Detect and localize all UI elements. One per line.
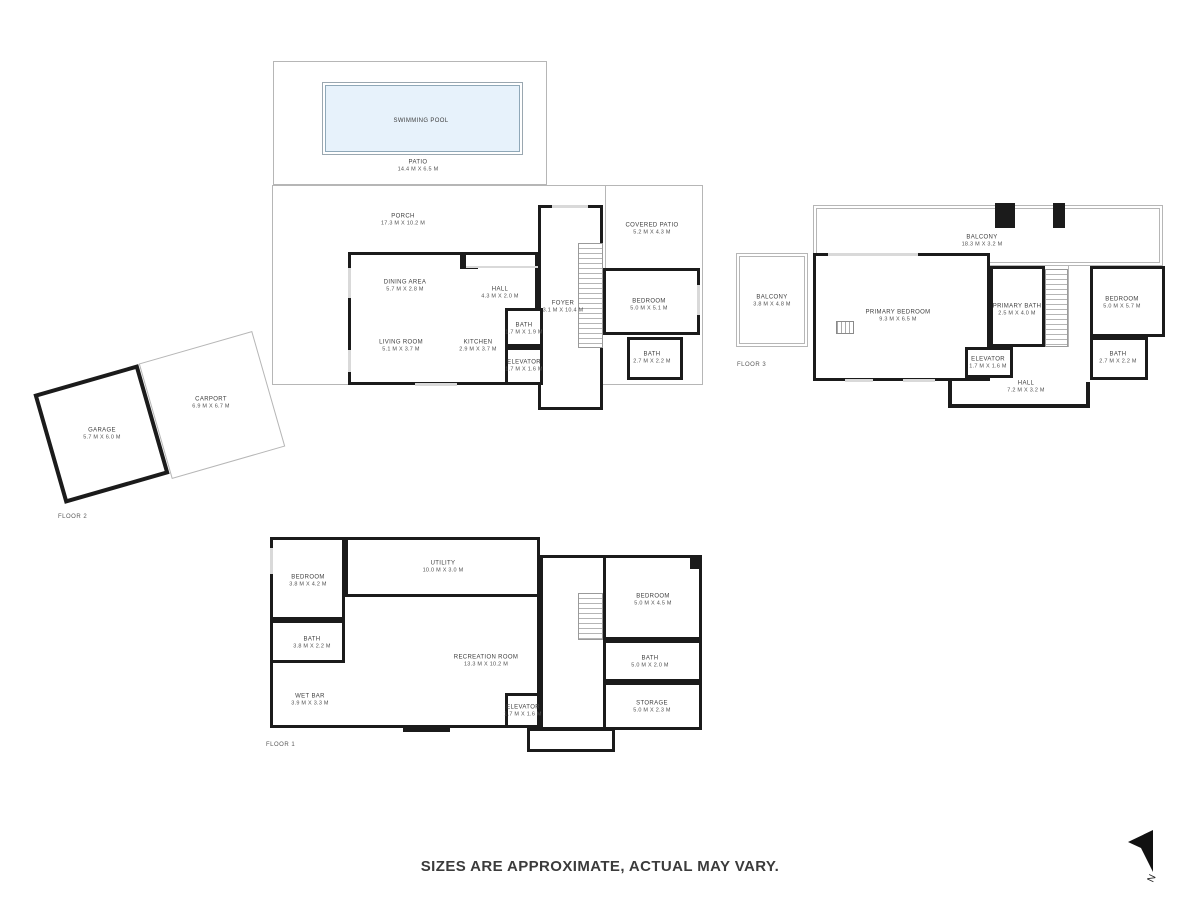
room-label-recreation-room: RECREATION ROOM13.3 M X 10.2 M [454, 655, 518, 668]
room-label-bath: BATH5.0 M X 2.0 M [631, 656, 669, 669]
room-label-storage: STORAGE5.0 M X 2.3 M [633, 701, 671, 714]
room-label-bedroom: BEDROOM5.0 M X 5.1 M [630, 299, 668, 312]
room-dimensions: 2.7 M X 2.2 M [1099, 359, 1137, 365]
room-name: ELEVATOR [969, 357, 1007, 363]
north-label: N [1146, 873, 1159, 884]
room-dimensions: 5.0 M X 2.0 M [631, 663, 669, 669]
wall-segment [1053, 203, 1065, 228]
room-label-swimming-pool: SWIMMING POOL [394, 118, 449, 124]
floorplan-canvas: FLOOR 2 FLOOR 3 FLOOR 1 SIZES ARE APPROX… [0, 0, 1200, 900]
room-dimensions: 5.7 M X 6.0 M [83, 435, 121, 441]
room-name: KITCHEN [459, 340, 497, 346]
room-label-bedroom: BEDROOM5.0 M X 4.5 M [634, 594, 672, 607]
room-name: BEDROOM [634, 594, 672, 600]
room-name: SWIMMING POOL [394, 118, 449, 124]
room-label-elevator: ELEVATOR1.7 M X 1.6 M [969, 357, 1007, 370]
room-name: PATIO [398, 160, 439, 166]
room-label-foyer: FOYER3.1 M X 10.4 M [543, 301, 584, 314]
room-name: STORAGE [633, 701, 671, 707]
room-name: FOYER [543, 301, 584, 307]
room-label-hall: HALL7.2 M X 3.2 M [1007, 381, 1045, 394]
room-dimensions: 5.0 M X 5.7 M [1103, 304, 1141, 310]
room-label-bedroom: BEDROOM5.0 M X 5.7 M [1103, 297, 1141, 310]
room-name: PORCH [381, 214, 425, 220]
room-name: ELEVATOR [505, 360, 543, 366]
stairs-f2 [578, 243, 603, 348]
room-dimensions: 1.7 M X 1.9 M [505, 330, 543, 336]
window-segment [828, 253, 918, 256]
room-label-covered-patio: COVERED PATIO5.2 M X 4.3 M [625, 223, 678, 236]
room-label-porch: PORCH17.3 M X 10.2 M [381, 214, 425, 227]
room-dimensions: 6.9 M X 6.7 M [192, 404, 230, 410]
room-dimensions: 17.3 M X 10.2 M [381, 221, 425, 227]
room-name: CARPORT [192, 397, 230, 403]
room-dimensions: 5.0 M X 5.1 M [630, 306, 668, 312]
stairs-f1 [578, 593, 603, 640]
room-name: WET BAR [291, 694, 329, 700]
room-name: HALL [1007, 381, 1045, 387]
room-dimensions: 2.7 M X 2.2 M [633, 359, 671, 365]
room-dimensions: 5.0 M X 4.5 M [634, 601, 672, 607]
window-segment [270, 548, 273, 574]
room-dimensions: 5.1 M X 3.7 M [379, 347, 423, 353]
room-name: UTILITY [423, 561, 464, 567]
room-label-bath: BATH1.7 M X 1.9 M [505, 323, 543, 336]
window-segment [415, 383, 457, 386]
room-label-patio: PATIO14.4 M X 6.5 M [398, 160, 439, 173]
room-dimensions: 3.1 M X 10.4 M [543, 308, 584, 314]
room-label-bath: BATH2.7 M X 2.2 M [1099, 352, 1137, 365]
room-name: GARAGE [83, 428, 121, 434]
room-dimensions: 3.9 M X 3.3 M [291, 701, 329, 707]
fireplace-icon [836, 321, 854, 334]
room-dimensions: 9.3 M X 6.5 M [865, 317, 930, 323]
room-dimensions: 2.9 M X 3.7 M [459, 347, 497, 353]
window-segment [466, 266, 538, 268]
room-name: BATH [505, 323, 543, 329]
room-name: BEDROOM [289, 575, 327, 581]
room-dimensions: 5.2 M X 4.3 M [625, 230, 678, 236]
room-label-bedroom: BEDROOM3.8 M X 4.2 M [289, 575, 327, 588]
room-dimensions: 2.5 M X 4.0 M [993, 311, 1042, 317]
floor-2-label: FLOOR 2 [58, 514, 87, 520]
room-label-elevator: ELEVATOR1.7 M X 1.6 M [505, 360, 543, 373]
porch-divider-line [605, 185, 606, 268]
stairs-f3 [1045, 269, 1068, 347]
window-segment [348, 350, 351, 372]
room-name: DINING AREA [384, 280, 427, 286]
room-label-wet-bar: WET BAR3.9 M X 3.3 M [291, 694, 329, 707]
landing-line [1068, 266, 1069, 347]
entry-bump [527, 728, 615, 752]
room-dimensions: 14.4 M X 6.5 M [398, 167, 439, 173]
window-segment [348, 268, 351, 298]
room-label-kitchen: KITCHEN2.9 M X 3.7 M [459, 340, 497, 353]
room-label-bath: BATH3.8 M X 2.2 M [293, 637, 331, 650]
room-dimensions: 3.8 M X 2.2 M [293, 644, 331, 650]
room-label-balcony: BALCONY18.3 M X 3.2 M [962, 235, 1003, 248]
room-name: COVERED PATIO [625, 223, 678, 229]
room-name: RECREATION ROOM [454, 655, 518, 661]
room-label-bath: BATH2.7 M X 2.2 M [633, 352, 671, 365]
room-label-hall: HALL4.3 M X 2.0 M [481, 287, 519, 300]
room-label-elevator: ELEVATOR1.7 M X 1.6 M [504, 705, 542, 718]
wall-segment [1086, 382, 1090, 408]
window-segment [552, 205, 588, 208]
room-dimensions: 1.7 M X 1.6 M [505, 367, 543, 373]
wall-segment [690, 555, 702, 569]
room-name: PRIMARY BEDROOM [865, 310, 930, 316]
room-label-primary-bedroom: PRIMARY BEDROOM9.3 M X 6.5 M [865, 310, 930, 323]
room-dimensions: 5.0 M X 2.3 M [633, 708, 671, 714]
room-name: ELEVATOR [504, 705, 542, 711]
disclaimer-text: SIZES ARE APPROXIMATE, ACTUAL MAY VARY. [0, 858, 1200, 875]
floor-3-label: FLOOR 3 [737, 362, 766, 368]
room-label-living-room: LIVING ROOM5.1 M X 3.7 M [379, 340, 423, 353]
room-name: HALL [481, 287, 519, 293]
room-name: PRIMARY BATH [993, 304, 1042, 310]
room-dimensions: 1.7 M X 1.6 M [969, 364, 1007, 370]
north-arrow-icon: N [1120, 826, 1164, 888]
room-label-primary-bath: PRIMARY BATH2.5 M X 4.0 M [993, 304, 1042, 317]
wall-segment [403, 725, 450, 732]
room-dimensions: 18.3 M X 3.2 M [962, 242, 1003, 248]
room-dimensions: 13.3 M X 10.2 M [454, 662, 518, 668]
floor-1-label: FLOOR 1 [266, 742, 295, 748]
room-dimensions: 7.2 M X 3.2 M [1007, 388, 1045, 394]
room-name: BATH [631, 656, 669, 662]
room-dimensions: 3.8 M X 4.2 M [289, 582, 327, 588]
room-label-utility: UTILITY10.0 M X 3.0 M [423, 561, 464, 574]
room-name: BATH [633, 352, 671, 358]
room-name: BEDROOM [630, 299, 668, 305]
room-name: BALCONY [962, 235, 1003, 241]
room-name: BATH [1099, 352, 1137, 358]
window-segment [845, 379, 873, 382]
room-name: BATH [293, 637, 331, 643]
room-label-balcony: BALCONY3.8 M X 4.8 M [753, 295, 791, 308]
room-label-dining-area: DINING AREA5.7 M X 2.8 M [384, 280, 427, 293]
room-label-carport: CARPORT6.9 M X 6.7 M [192, 397, 230, 410]
room-dimensions: 4.3 M X 2.0 M [481, 294, 519, 300]
room-dimensions: 5.7 M X 2.8 M [384, 287, 427, 293]
window-segment [903, 379, 935, 382]
room-dimensions: 3.8 M X 4.8 M [753, 302, 791, 308]
room-dimensions: 10.0 M X 3.0 M [423, 568, 464, 574]
room-label-garage: GARAGE5.7 M X 6.0 M [83, 428, 121, 441]
window-segment [697, 285, 700, 315]
room-dimensions: 1.7 M X 1.6 M [504, 712, 542, 718]
wall-segment [995, 203, 1015, 228]
wall-segment [948, 404, 1090, 408]
room-name: LIVING ROOM [379, 340, 423, 346]
room-name: BEDROOM [1103, 297, 1141, 303]
room-name: BALCONY [753, 295, 791, 301]
